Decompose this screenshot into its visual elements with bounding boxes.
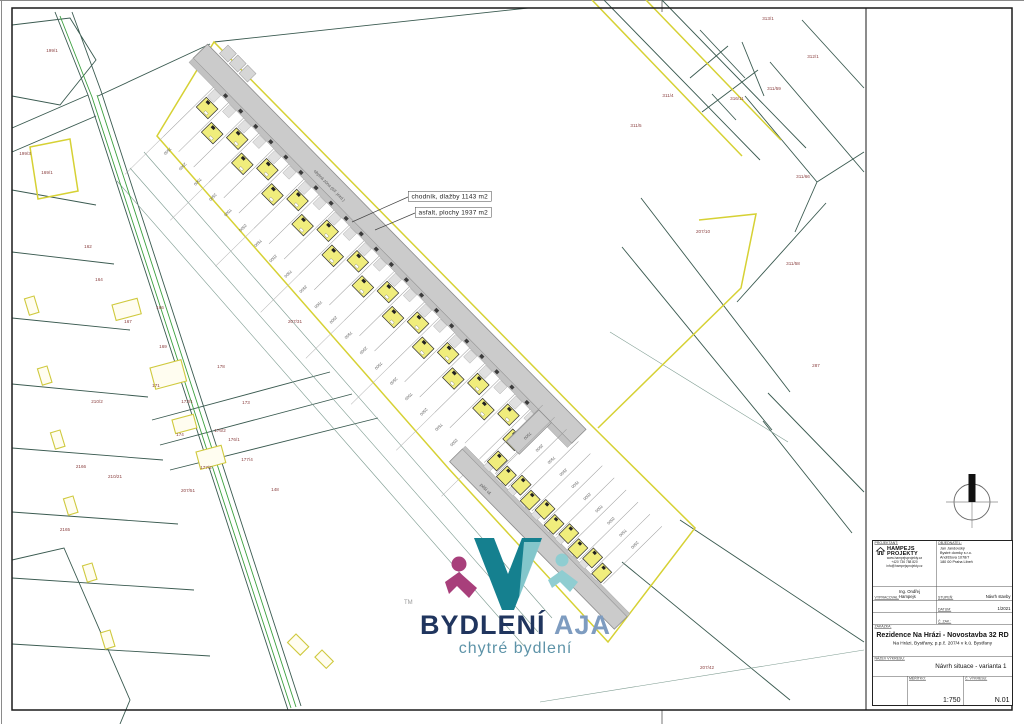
parcel-number-label: 176/1 (228, 437, 240, 442)
lot-dimension-label: 2500 (558, 468, 568, 478)
scale-value: 1:750 (943, 696, 961, 704)
house-footprint (443, 368, 465, 390)
parcel-number-label: 311/66 (796, 174, 810, 179)
field-line (125, 136, 164, 174)
lot-line (520, 441, 578, 498)
drafted-value: Ing. Ondřej Hampejs (899, 589, 935, 600)
logo-tagline: chytré bydlení (408, 640, 623, 658)
titleblock-designer-cell: PROJEKTANT: HAMPEJS PROJEKTY www.hampejs… (873, 541, 936, 586)
titleblock-empty-cell (873, 676, 907, 705)
designer-label: PROJEKTANT: (875, 542, 935, 546)
north-arrow (946, 474, 998, 528)
lot-dimension-label: 2500 (606, 516, 616, 526)
field-line (170, 182, 209, 220)
title-block: PROJEKTANT: HAMPEJS PROJEKTY www.hampejs… (872, 540, 1013, 706)
parcel-number-label: 177/2 (200, 465, 212, 470)
lot-dimension-label: 2500 (328, 315, 338, 325)
drawing-number-label: Č. VÝKRESU: (965, 677, 1011, 681)
parcel-number-label: 311/5 (630, 123, 642, 128)
parcel-number-label: 173/1 (181, 399, 193, 404)
callout-asphalt-area: asfalt, plochy 1937 m2 (415, 207, 491, 218)
lot-dimension-label: 2500 (534, 443, 544, 453)
parcel-number-label: 311/59 (767, 86, 781, 91)
lot-dimension-label: 7500 (283, 269, 293, 279)
lot-dimension-label: 7500 (403, 392, 413, 402)
parcel-number-label: 169 (159, 344, 167, 349)
lot-dimension-label: 2500 (358, 346, 368, 356)
lot-dimension-label: 7500 (594, 504, 604, 514)
lot-line (532, 454, 590, 511)
logo-word-secondary: AJA (554, 610, 611, 640)
parcel-number-label: 2165 (60, 527, 71, 532)
lot-dimension-label: 7500 (570, 480, 580, 490)
logo-word-primary: BYDLENÍ (420, 610, 546, 640)
field-line (306, 320, 345, 358)
parcel-number-label: 177/4 (241, 457, 253, 462)
parcel-number-label: 313/1 (762, 16, 774, 21)
firm-name: HAMPEJS PROJEKTY (887, 546, 918, 556)
house-footprint (322, 245, 344, 267)
scale-label: MĚŘÍTKO: (909, 677, 962, 681)
lot-dimension-label: 7500 (373, 361, 383, 371)
lot-dimension-label: 2500 (207, 192, 217, 202)
house-footprint (473, 398, 495, 420)
parcel-number-label: 173 (242, 400, 250, 405)
client-label: OBJEDNATEL: (938, 542, 1011, 546)
lot-dimension-label: 7500 (313, 300, 323, 310)
titleblock-empty-cell (873, 612, 936, 624)
callout-asphalt-text: asfalt, plochy 1937 m2 (419, 209, 488, 217)
parcel-number-label: 171 (152, 383, 160, 388)
parcel-number-label: 166 (156, 305, 164, 310)
field-line (215, 228, 254, 266)
parcel-number-label: 210/2 (91, 399, 103, 404)
project-title: Rezidence Na Hrázi - Novostavba 32 RD (875, 631, 1011, 639)
job-label: ZAKÁZKA: (875, 625, 1011, 629)
stage-value: Návrh stavby (986, 594, 1011, 600)
lot-line (556, 478, 614, 535)
house-footprint (201, 122, 223, 144)
parcel-number-label: 207/10 (696, 229, 710, 234)
field-line (396, 412, 435, 450)
house-footprint (292, 214, 314, 236)
parcel-number-label: 2166 (76, 464, 87, 469)
titleblock-drafted-cell: VYPRACOVAL: Ing. Ondřej Hampejs (873, 586, 936, 600)
parcel-number-label: 167 (124, 319, 132, 324)
lot-dimension-label: 7500 (546, 455, 556, 465)
parcel-number-label: 287 (812, 363, 820, 368)
titleblock-job-cell: ZAKÁZKA: Rezidence Na Hrázi - Novostavba… (873, 624, 1012, 656)
lot-dimension-label: 2500 (629, 540, 639, 550)
field-line (261, 274, 300, 312)
lot-dimension-label: 7500 (433, 422, 443, 432)
parcel-number-label: 164 (95, 277, 103, 282)
parcel-number-label: 316/11 (730, 96, 744, 101)
parcel-number-label: 312/1 (807, 54, 819, 59)
parcel-number-label: 311/58 (786, 261, 800, 266)
hampejs-house-icon (876, 547, 886, 556)
lot-dimension-label: 2500 (418, 407, 428, 417)
parcel-number-label: 178 (217, 364, 225, 369)
house-footprint (232, 153, 254, 175)
parcel-number-label: 199/3 (19, 151, 31, 156)
callout-sidewalk-text: chodník, dlažby 1143 m2 (412, 193, 488, 201)
titleblock-stage-cell: STUPEŇ: Návrh stavby (936, 586, 1012, 600)
house-footprint (412, 337, 434, 359)
parcel-number-label: 169/1 (41, 170, 53, 175)
bydleni-aja-logo: TM BYDLENÍ AJA chytré bydlení (408, 536, 623, 658)
lot-dimension-label: 2500 (268, 254, 278, 264)
project-location: Na Hrázi, Bystřany, p.p.č. 207/4 v k.ú. … (875, 641, 1011, 647)
titleblock-client-cell: OBJEDNATEL: Jan Jandovský Bystré domky s… (936, 541, 1012, 586)
lot-dimension-label: 2500 (388, 376, 398, 386)
lot-dimension-label: 2500 (582, 492, 592, 502)
drawing-sheet: { "annotations": { "label_sidewalk": "ch… (0, 0, 1024, 724)
lot-dimension-label: 2500 (298, 284, 308, 294)
existing-buildings (24, 296, 333, 668)
trademark-symbol: TM (404, 600, 413, 606)
parcel-number-label: 174 (176, 432, 184, 437)
house-footprint (382, 306, 404, 328)
lot-line (544, 466, 602, 523)
titleblock-order-cell: Č. ZAK.: (936, 612, 1012, 624)
titleblock-date-cell: DATUM: 1/2021 (936, 600, 1012, 612)
parcel-number-label: 148 (271, 487, 279, 492)
callout-sidewalk-area: chodník, dlažby 1143 m2 (408, 191, 491, 202)
parcel-number-label: 311/4 (662, 93, 674, 98)
logo-mark-icon (441, 536, 591, 612)
drawing-name-value: Návrh situace - varianta 1 (875, 661, 1011, 670)
sidewalk (189, 58, 572, 447)
parcel-number-label: 210/21 (108, 474, 122, 479)
lot-dimension-label: 2500 (449, 438, 459, 448)
lot-dimension-label: 2500 (238, 223, 248, 233)
house-footprint (262, 184, 284, 206)
development-band-main: obytná zóna (šíř. jezd.) 750025007500250… (100, 34, 595, 534)
house-footprint (352, 276, 374, 298)
titleblock-scale-cell: MĚŘÍTKO: 1:750 (907, 676, 963, 705)
titleblock-empty-cell (873, 600, 936, 612)
parcel-number-label: 176/2 (214, 428, 226, 433)
logo-wordmark: BYDLENÍ AJA (408, 612, 623, 638)
date-value: 1/2021 (998, 606, 1011, 612)
firm-contact: www.hampejsprojekty.cz +420 736 788 820 … (875, 557, 935, 569)
lot-dimension-label: 7500 (343, 330, 353, 340)
parcel-number-label: 207/51 (181, 488, 195, 493)
client-address: Jan Jandovský Bystré domky s.r.o. Andršt… (940, 546, 1011, 564)
parcel-number-label: 199/1 (46, 48, 58, 53)
titleblock-number-cell: Č. VÝKRESU: N.01 (963, 676, 1012, 705)
field-line (351, 366, 390, 404)
parcel-number-label: 207/42 (700, 665, 714, 670)
parcel-number-label: 207/31 (288, 319, 302, 324)
lot-dimension-label: 2500 (177, 162, 187, 172)
parcel-number-label: 162 (84, 244, 92, 249)
titleblock-drawing-cell: NÁZEV VÝKRESU: Návrh situace - varianta … (873, 656, 1012, 676)
drawing-number-value: N.01 (995, 696, 1010, 704)
